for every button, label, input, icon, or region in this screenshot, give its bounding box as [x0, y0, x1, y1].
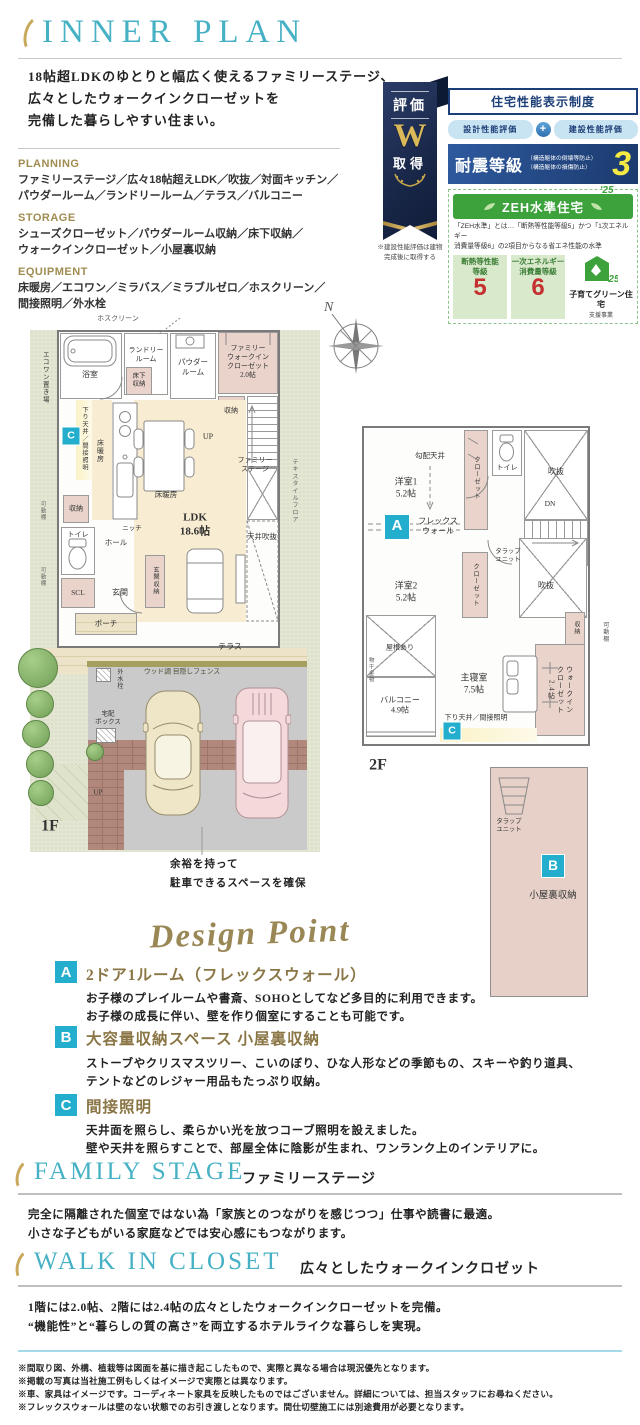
plan-badge-a: A	[385, 515, 409, 539]
rect	[113, 403, 137, 519]
circle	[417, 180, 419, 182]
point-c-line2: 壁や天井を照らすことで、部屋全体に陰影が生まれ、ワンランク上のインテリアに。	[86, 1140, 545, 1156]
rect	[198, 723, 203, 732]
family-stage-title-en: FAMILY STAGE	[34, 1158, 245, 1186]
point-c-line1: 天井面を照らし、柔らかい光を放つコーブ照明を設えました。	[86, 1122, 424, 1138]
circle	[401, 180, 403, 182]
rect	[286, 715, 291, 724]
walk-in-closet-line1: 1階には2.0帖、2階には2.4帖の広々としたウォークインクローゼットを完備。	[28, 1299, 448, 1315]
storage-text: シューズクローゼット／パウダールーム収納／床下収納／ ウォークインクローゼット／…	[18, 226, 376, 258]
green-support-name: 子育てグリーン住宅	[569, 290, 633, 310]
plan-label: 洋室2 5.2帖	[395, 580, 418, 603]
divider	[18, 58, 622, 59]
plan-label: 床下 収納	[133, 373, 146, 390]
rect	[233, 715, 238, 724]
plan-label: クローゼット	[471, 563, 479, 607]
card-title: 住宅性能表示制度	[448, 88, 638, 115]
badge-year-text: '25	[606, 274, 618, 285]
point-b-title: 大容量収納スペース 小屋裏収納	[86, 1027, 320, 1049]
divider	[18, 1285, 622, 1287]
plan-label: タラップ ユニット	[496, 818, 521, 834]
rect	[500, 435, 513, 442]
quake-sub2: （構造躯体の損傷防止）	[527, 165, 591, 171]
planning-text: ファミリーステージ／広々18帖超えLDK／吹抜／対面キッチン／ パウダールーム／…	[18, 172, 376, 204]
plan-label: クローゼット	[472, 456, 480, 500]
point-c-badge: C	[55, 1094, 77, 1116]
rect	[243, 721, 281, 783]
line	[332, 314, 356, 346]
path	[395, 174, 425, 186]
plan-badge-c: C	[63, 428, 80, 445]
quake-sub1: （構造躯体の倒壊等防止）	[527, 156, 597, 162]
divider	[18, 1193, 622, 1195]
disclaimer-line3: ※車、家具はイメージです。コーディネート家具を反映したものではございません。詳細…	[18, 1388, 558, 1400]
plan-label: 可動棚	[38, 567, 45, 587]
design-eval-pill: 設計性能評価	[448, 120, 533, 139]
energy-grade-value: 6	[511, 276, 565, 300]
design-point-heading: Design Point	[104, 911, 395, 958]
insulation-grade-box: 断熱等性能 等級 5	[453, 255, 507, 319]
award-ribbon: 評価 W 取得	[383, 82, 437, 240]
rect	[69, 539, 86, 547]
circle	[396, 176, 398, 178]
footer-divider	[18, 1350, 622, 1352]
plan-2f: 勾配天井洋室1 5.2帖クローゼットトイレ吹抜DNタラップ ユニットAフレックス…	[360, 380, 640, 780]
plan-label: 屋根あり	[386, 643, 414, 652]
path	[100, 377, 122, 399]
plan-label: ホール	[105, 538, 128, 548]
green-support-sub: 支援事業	[569, 310, 633, 319]
rect	[185, 457, 194, 477]
leaf-icon	[483, 202, 496, 211]
plan-label: LDK 18.6帖	[180, 511, 210, 540]
performance-card: 住宅性能表示制度 設計性能評価 + 建設性能評価 耐震等級 （構造躯体の倒壊等防…	[448, 88, 638, 324]
ribbon-bottom-label: 取得	[383, 153, 437, 172]
g	[499, 778, 529, 814]
plan-label: 下り天井／間接照明	[445, 713, 508, 722]
plan-label: 1F	[41, 817, 59, 838]
plan-label: ニッチ	[122, 525, 142, 533]
quake-sublabels: （構造躯体の倒壊等防止） （構造躯体の損傷防止）	[527, 155, 597, 172]
family-stage-line1: 完全に隔離された個室ではない為「家族とのつながりを感じつつ」仕事や読書に最適。	[28, 1206, 500, 1222]
zeh-section: ZEH水準住宅 「ZEH水準」とは…「断熱等性能等級5」かつ「1次エネルギー 消…	[448, 189, 638, 324]
plan-label: DN	[545, 499, 556, 509]
plan-label: 浴室	[82, 370, 98, 380]
spec-lists: PLANNING ファミリーステージ／広々18帖超えLDK／吹抜／対面キッチン／…	[18, 158, 376, 320]
plan-label: エコワン置き場	[40, 351, 48, 404]
rect	[144, 421, 184, 491]
family-stage-line2: 小さな子どもがいる家庭などでは安心感にもつながります。	[28, 1225, 353, 1241]
plan-label: SCL	[71, 588, 85, 598]
plan-label: ファミリー ウォークイン クローゼット 2.0帖	[227, 344, 269, 380]
ellipse	[500, 443, 514, 461]
plan-label: トイレ	[497, 463, 518, 472]
plan-label: タラップ ユニット	[495, 548, 520, 564]
plan-label: 物干金物	[366, 657, 373, 683]
storage-label: STORAGE	[18, 212, 376, 224]
walk-in-closet-title-en: WALK IN CLOSET	[34, 1248, 282, 1276]
plan-label: 吹抜	[548, 467, 564, 477]
insulation-grade-value: 5	[453, 276, 507, 300]
point-b-line1: ストーブやクリスマスツリー、こいのぼり、ひな人形などの季節もの、スキーや釣り道具…	[86, 1055, 581, 1071]
plan-label: 玄関収納	[151, 567, 159, 596]
badge-year: '25	[600, 185, 614, 196]
plan-label: 収納	[571, 621, 579, 635]
plan-label: 可動棚	[38, 501, 45, 521]
car-pink	[233, 685, 291, 822]
plan-label: フレックス ウォール	[418, 517, 458, 538]
ribbon-note: ※建設性能評価は建物 完成後に取得する	[371, 243, 449, 263]
plan-label: テキスタイルフロア	[290, 459, 298, 524]
ribbon-top-label: 評価	[391, 91, 429, 119]
plan-label: 宅配 ボックス	[95, 711, 121, 728]
zeh-bar: ZEH水準住宅	[453, 194, 633, 219]
plan-label: 床暖房	[95, 439, 104, 463]
rect	[185, 429, 194, 449]
plan-badge-c: C	[444, 723, 461, 740]
disclaimer-line2: ※掲載の写真は当社施工例もしくはイメージで実際とは異なります。	[18, 1375, 293, 1387]
walk-in-closet-line2: “機能性”と“暮らしの質の高さ”を両立するホテルライクな暮らしを実現。	[28, 1318, 428, 1334]
plan-label: 小屋裏収納	[529, 890, 577, 902]
green-support-badge: '25 子育てグリーン住宅 支援事業	[569, 255, 633, 319]
plan-label: 洋室1 5.2帖	[395, 476, 418, 499]
plan-label: 吹抜	[538, 581, 554, 591]
compass-rose-icon	[322, 306, 386, 376]
rect	[187, 549, 223, 613]
walk-in-closet-title-jp: 広々としたウォークインクロゼット	[300, 1258, 540, 1278]
plan-label: 下り天井／間接照明	[80, 407, 88, 472]
plan-label: ウォークイン クローゼット 2.4帖	[546, 666, 573, 714]
quake-label: 耐震等級	[455, 152, 523, 176]
green-house-icon: '25	[584, 255, 618, 285]
plan-label: 主寝室 7.5帖	[460, 672, 487, 695]
divider	[18, 148, 340, 149]
quake-grade-value: 3	[612, 146, 631, 182]
rect	[507, 661, 518, 676]
path	[591, 203, 602, 210]
ellipse	[69, 547, 86, 569]
rect	[134, 429, 143, 449]
plan-label: 床暖房	[155, 490, 178, 500]
plan-label: 収納	[69, 504, 83, 513]
plan-label: ホスクリーン	[97, 314, 139, 323]
plan-label: 勾配天井	[415, 451, 445, 461]
point-a-title: 2ドア1ルーム（フレックスウォール）	[86, 963, 367, 985]
equipment-label: EQUIPMENT	[18, 266, 376, 278]
construction-eval-pill: 建設性能評価	[554, 120, 639, 139]
rect	[134, 457, 143, 477]
circle	[71, 349, 75, 353]
zeh-bar-label: ZEH水準住宅	[502, 197, 584, 216]
plan-badge-b: B	[542, 855, 564, 877]
rect	[236, 555, 245, 603]
plan-label: バルコニー 4.9帖	[380, 696, 420, 717]
plan-label: ランドリー ルーム	[129, 346, 164, 364]
plan-label: UP	[203, 432, 213, 442]
disclaimer-line4: ※フレックスウォールは壁のない状態でのお引き渡しとなります。間仕切壁施工には別途…	[18, 1401, 469, 1413]
page-title: INNER PLAN	[42, 14, 307, 51]
line	[158, 318, 180, 335]
leaf-icon	[590, 202, 603, 211]
rect	[155, 735, 191, 779]
line	[468, 438, 478, 444]
point-b-badge: B	[55, 1026, 77, 1048]
point-b-line2: テントなどのレジャー用品もたっぷり収納。	[86, 1073, 327, 1089]
plan-1f: ホスクリーンエコワン置き場浴室ランドリー ルーム床下 収納パウダー ルームファミ…	[30, 315, 330, 890]
car-beige	[143, 687, 203, 819]
plan-label: パウダー ルーム	[178, 357, 208, 377]
energy-grade-box: 一次エネルギー 消費量等級 6	[511, 255, 565, 319]
flyer-page: INNER PLAN 18帖超LDKのゆとりと幅広く使えるファミリーステージ、 …	[0, 0, 640, 1425]
intro-text: 18帖超LDKのゆとりと幅広く使えるファミリーステージ、 広々としたウォークイン…	[28, 66, 428, 132]
rect	[507, 679, 518, 694]
plan-label: トイレ	[68, 530, 89, 539]
rect	[143, 723, 148, 732]
plan-label: ウッド調 目隠しフェンス	[144, 669, 220, 678]
quake-grade-bar: 耐震等級 （構造躯体の倒壊等防止） （構造躯体の損傷防止） 3	[448, 144, 638, 184]
plan-attic: タラップ ユニットB小屋裏収納	[490, 767, 588, 997]
evaluation-pills: 設計性能評価 + 建設性能評価	[448, 120, 638, 139]
planning-label: PLANNING	[18, 158, 376, 170]
plan-label: 玄関	[112, 588, 128, 598]
family-stage-title-jp: ファミリーステージ	[242, 1168, 376, 1188]
plan-label: 可動棚	[600, 622, 608, 643]
attic-ladder-icon	[491, 768, 589, 998]
circle	[422, 176, 424, 178]
plan-label: ファミリー ステージ	[238, 456, 273, 474]
point-a-line1: お子様のプレイルームや書斎、SOHOとしてなど多目的に利用できます。	[86, 990, 483, 1006]
plus-icon: +	[536, 122, 551, 137]
zeh-grades-row: 断熱等性能 等級 5 一次エネルギー 消費量等級 6 '25 子育てグリーン住宅…	[453, 255, 633, 319]
plan-label: 外水栓	[114, 669, 122, 690]
plan-label: ポーチ	[95, 619, 118, 629]
plan-label: テラス	[218, 642, 242, 652]
plan-label: 2F	[369, 756, 387, 777]
point-a-badge: A	[55, 961, 77, 983]
plan-label: UP	[94, 788, 103, 797]
compass: N	[322, 300, 386, 378]
path	[484, 203, 495, 210]
point-a-line2: お子様の成長に伴い、壁を作り個室にすることも可能です。	[86, 1008, 412, 1024]
point-c-title: 間接照明	[86, 1095, 152, 1117]
plan-label: 収納	[224, 406, 238, 415]
laurel-icon	[390, 172, 430, 188]
zeh-note: 「ZEH水準」とは…「断熱等性能等級5」かつ「1次エネルギー 消費量等級6」の2…	[454, 222, 632, 252]
plan-label: 天井吹抜	[247, 532, 277, 542]
ribbon-w-letter: W	[383, 119, 437, 153]
disclaimer-line1: ※間取り図、外構、植栽等は図面を基に描き起こしたもので、実際と異なる場合は現況優…	[18, 1362, 435, 1374]
